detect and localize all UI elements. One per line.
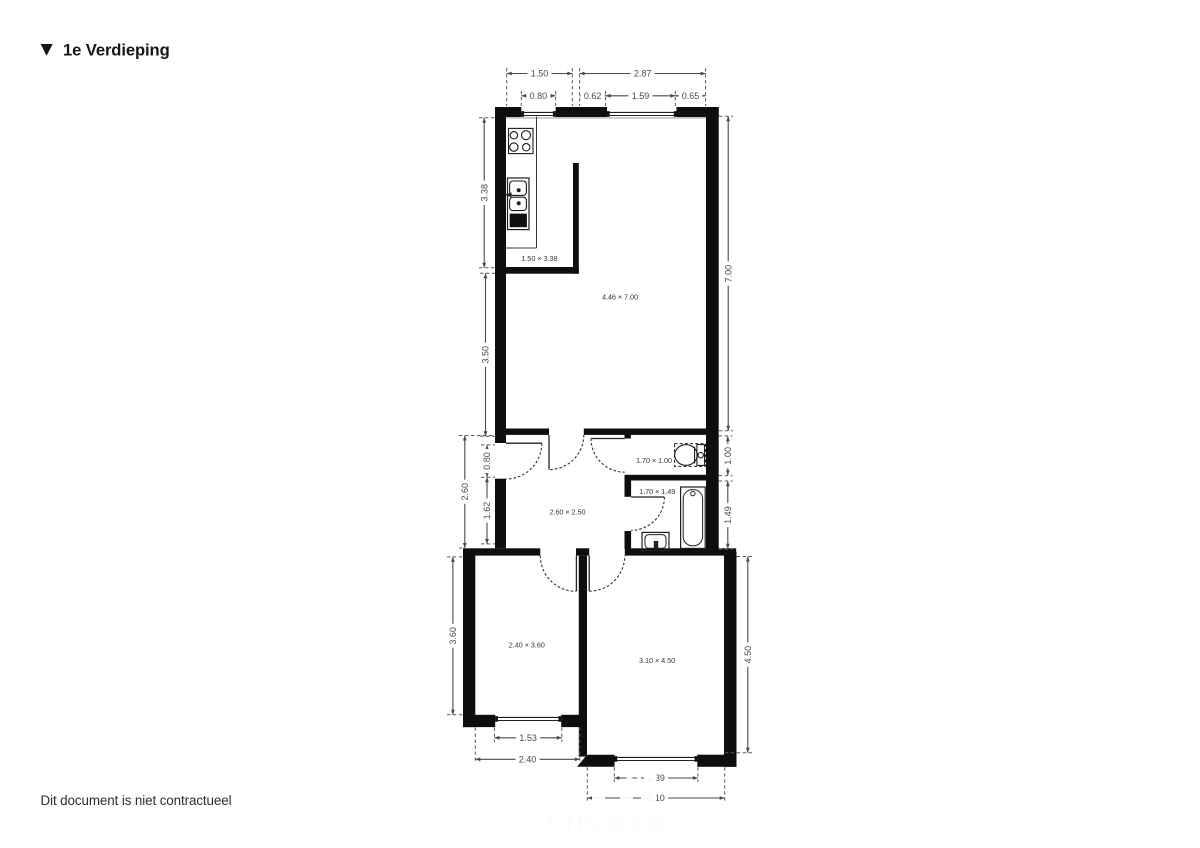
svg-text:1.70 × 1.49: 1.70 × 1.49 xyxy=(639,487,675,496)
svg-text:1.70 × 1.00: 1.70 × 1.00 xyxy=(636,456,672,465)
svg-text:3.60: 3.60 xyxy=(448,627,458,645)
svg-text:1.50 × 3.38: 1.50 × 3.38 xyxy=(521,254,557,263)
svg-text:1.62: 1.62 xyxy=(482,502,492,520)
svg-text:2.87: 2.87 xyxy=(634,69,652,79)
svg-text:1.53: 1.53 xyxy=(519,733,537,743)
svg-text:2.60 × 2.50: 2.60 × 2.50 xyxy=(549,508,585,517)
svg-text:2.60: 2.60 xyxy=(460,483,470,501)
svg-text:3.10 × 4.50: 3.10 × 4.50 xyxy=(639,656,675,665)
svg-text:1e Verdieping: 1e Verdieping xyxy=(63,41,170,60)
svg-text:0.80: 0.80 xyxy=(482,452,492,470)
svg-text:1.00: 1.00 xyxy=(723,447,733,465)
svg-text:2.40: 2.40 xyxy=(519,754,537,764)
svg-text:0.80: 0.80 xyxy=(530,91,548,101)
svg-text:7.00: 7.00 xyxy=(723,265,733,283)
svg-text:3.38: 3.38 xyxy=(479,184,489,202)
svg-text:0.65: 0.65 xyxy=(682,91,700,101)
svg-text:2.40 × 3.60: 2.40 × 3.60 xyxy=(509,640,545,649)
svg-text:1.50: 1.50 xyxy=(531,69,549,79)
svg-text:3.50: 3.50 xyxy=(481,346,491,364)
svg-text:4.50: 4.50 xyxy=(743,646,753,664)
svg-text:1.49: 1.49 xyxy=(723,506,733,524)
svg-text:0.62: 0.62 xyxy=(584,91,602,101)
svg-text:Dit document is niet contractu: Dit document is niet contractueel xyxy=(41,793,232,808)
svg-text:1.59: 1.59 xyxy=(632,91,650,101)
svg-text:micasa: micasa xyxy=(546,801,665,837)
svg-text:4.46 × 7.00: 4.46 × 7.00 xyxy=(602,292,638,301)
